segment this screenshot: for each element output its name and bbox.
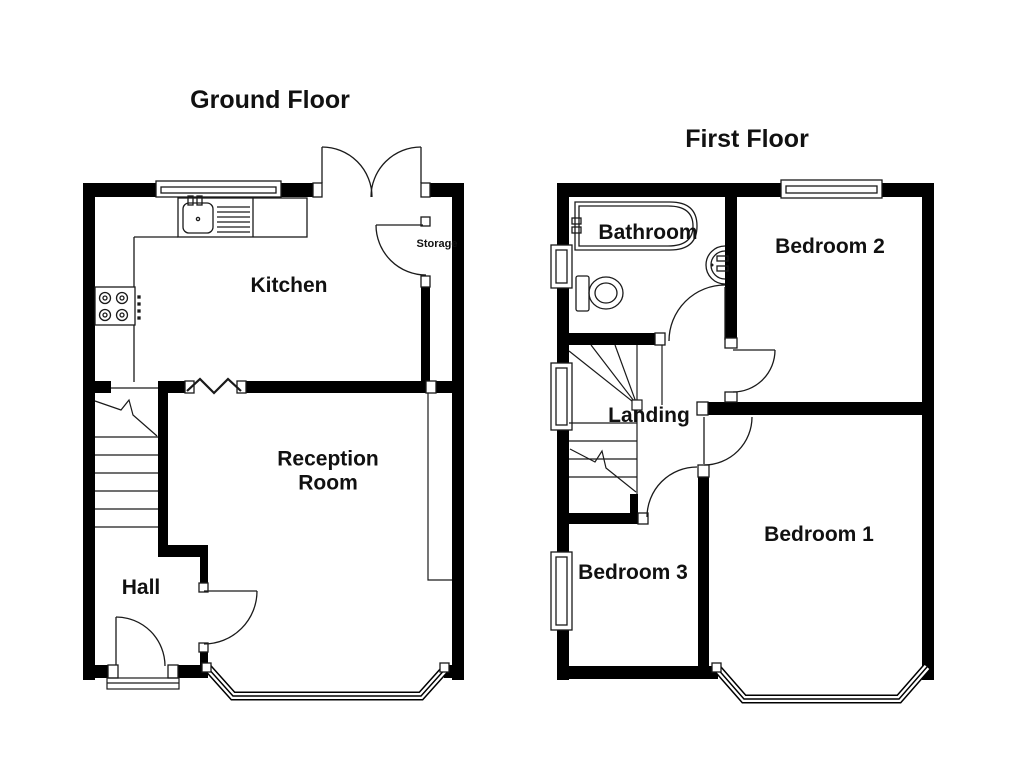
- chimney-breast: [428, 393, 452, 580]
- room-label-landing: Landing: [608, 404, 690, 428]
- hob-icon: [95, 287, 140, 325]
- reception-line2: Room: [298, 471, 358, 494]
- room-label-storage: Storage: [417, 238, 458, 250]
- ground-walls: [83, 183, 464, 680]
- first-doors: [647, 285, 775, 517]
- first-door-jambs: [638, 333, 737, 672]
- room-label-kitchen: Kitchen: [250, 274, 327, 298]
- ground-floor-plan: [83, 147, 464, 696]
- toilet-icon: [576, 276, 623, 311]
- room-label-bedroom3: Bedroom 3: [578, 561, 688, 585]
- room-label-bathroom: Bathroom: [598, 221, 697, 245]
- room-label-bedroom1: Bedroom 1: [764, 523, 874, 547]
- kitchen-window: [156, 181, 281, 197]
- reception-line1: Reception: [277, 447, 379, 470]
- floorplan-drawing: [0, 0, 1024, 768]
- ground-staircase: [95, 388, 158, 527]
- room-label-hall: Hall: [122, 576, 161, 600]
- ground-floor-title: Ground Floor: [190, 86, 350, 114]
- wash-basin-icon: [706, 246, 728, 284]
- floorplan-canvas: Ground Floor First Floor Kitchen Recepti…: [0, 0, 1024, 768]
- ground-bay-window: [207, 667, 447, 696]
- first-bay-window: [716, 667, 927, 699]
- front-porch-step: [107, 678, 179, 689]
- room-label-bedroom2: Bedroom 2: [775, 235, 885, 259]
- kitchen-opening-break: [187, 379, 241, 393]
- first-floor-title: First Floor: [685, 125, 809, 153]
- room-label-reception: Reception Room: [277, 447, 379, 494]
